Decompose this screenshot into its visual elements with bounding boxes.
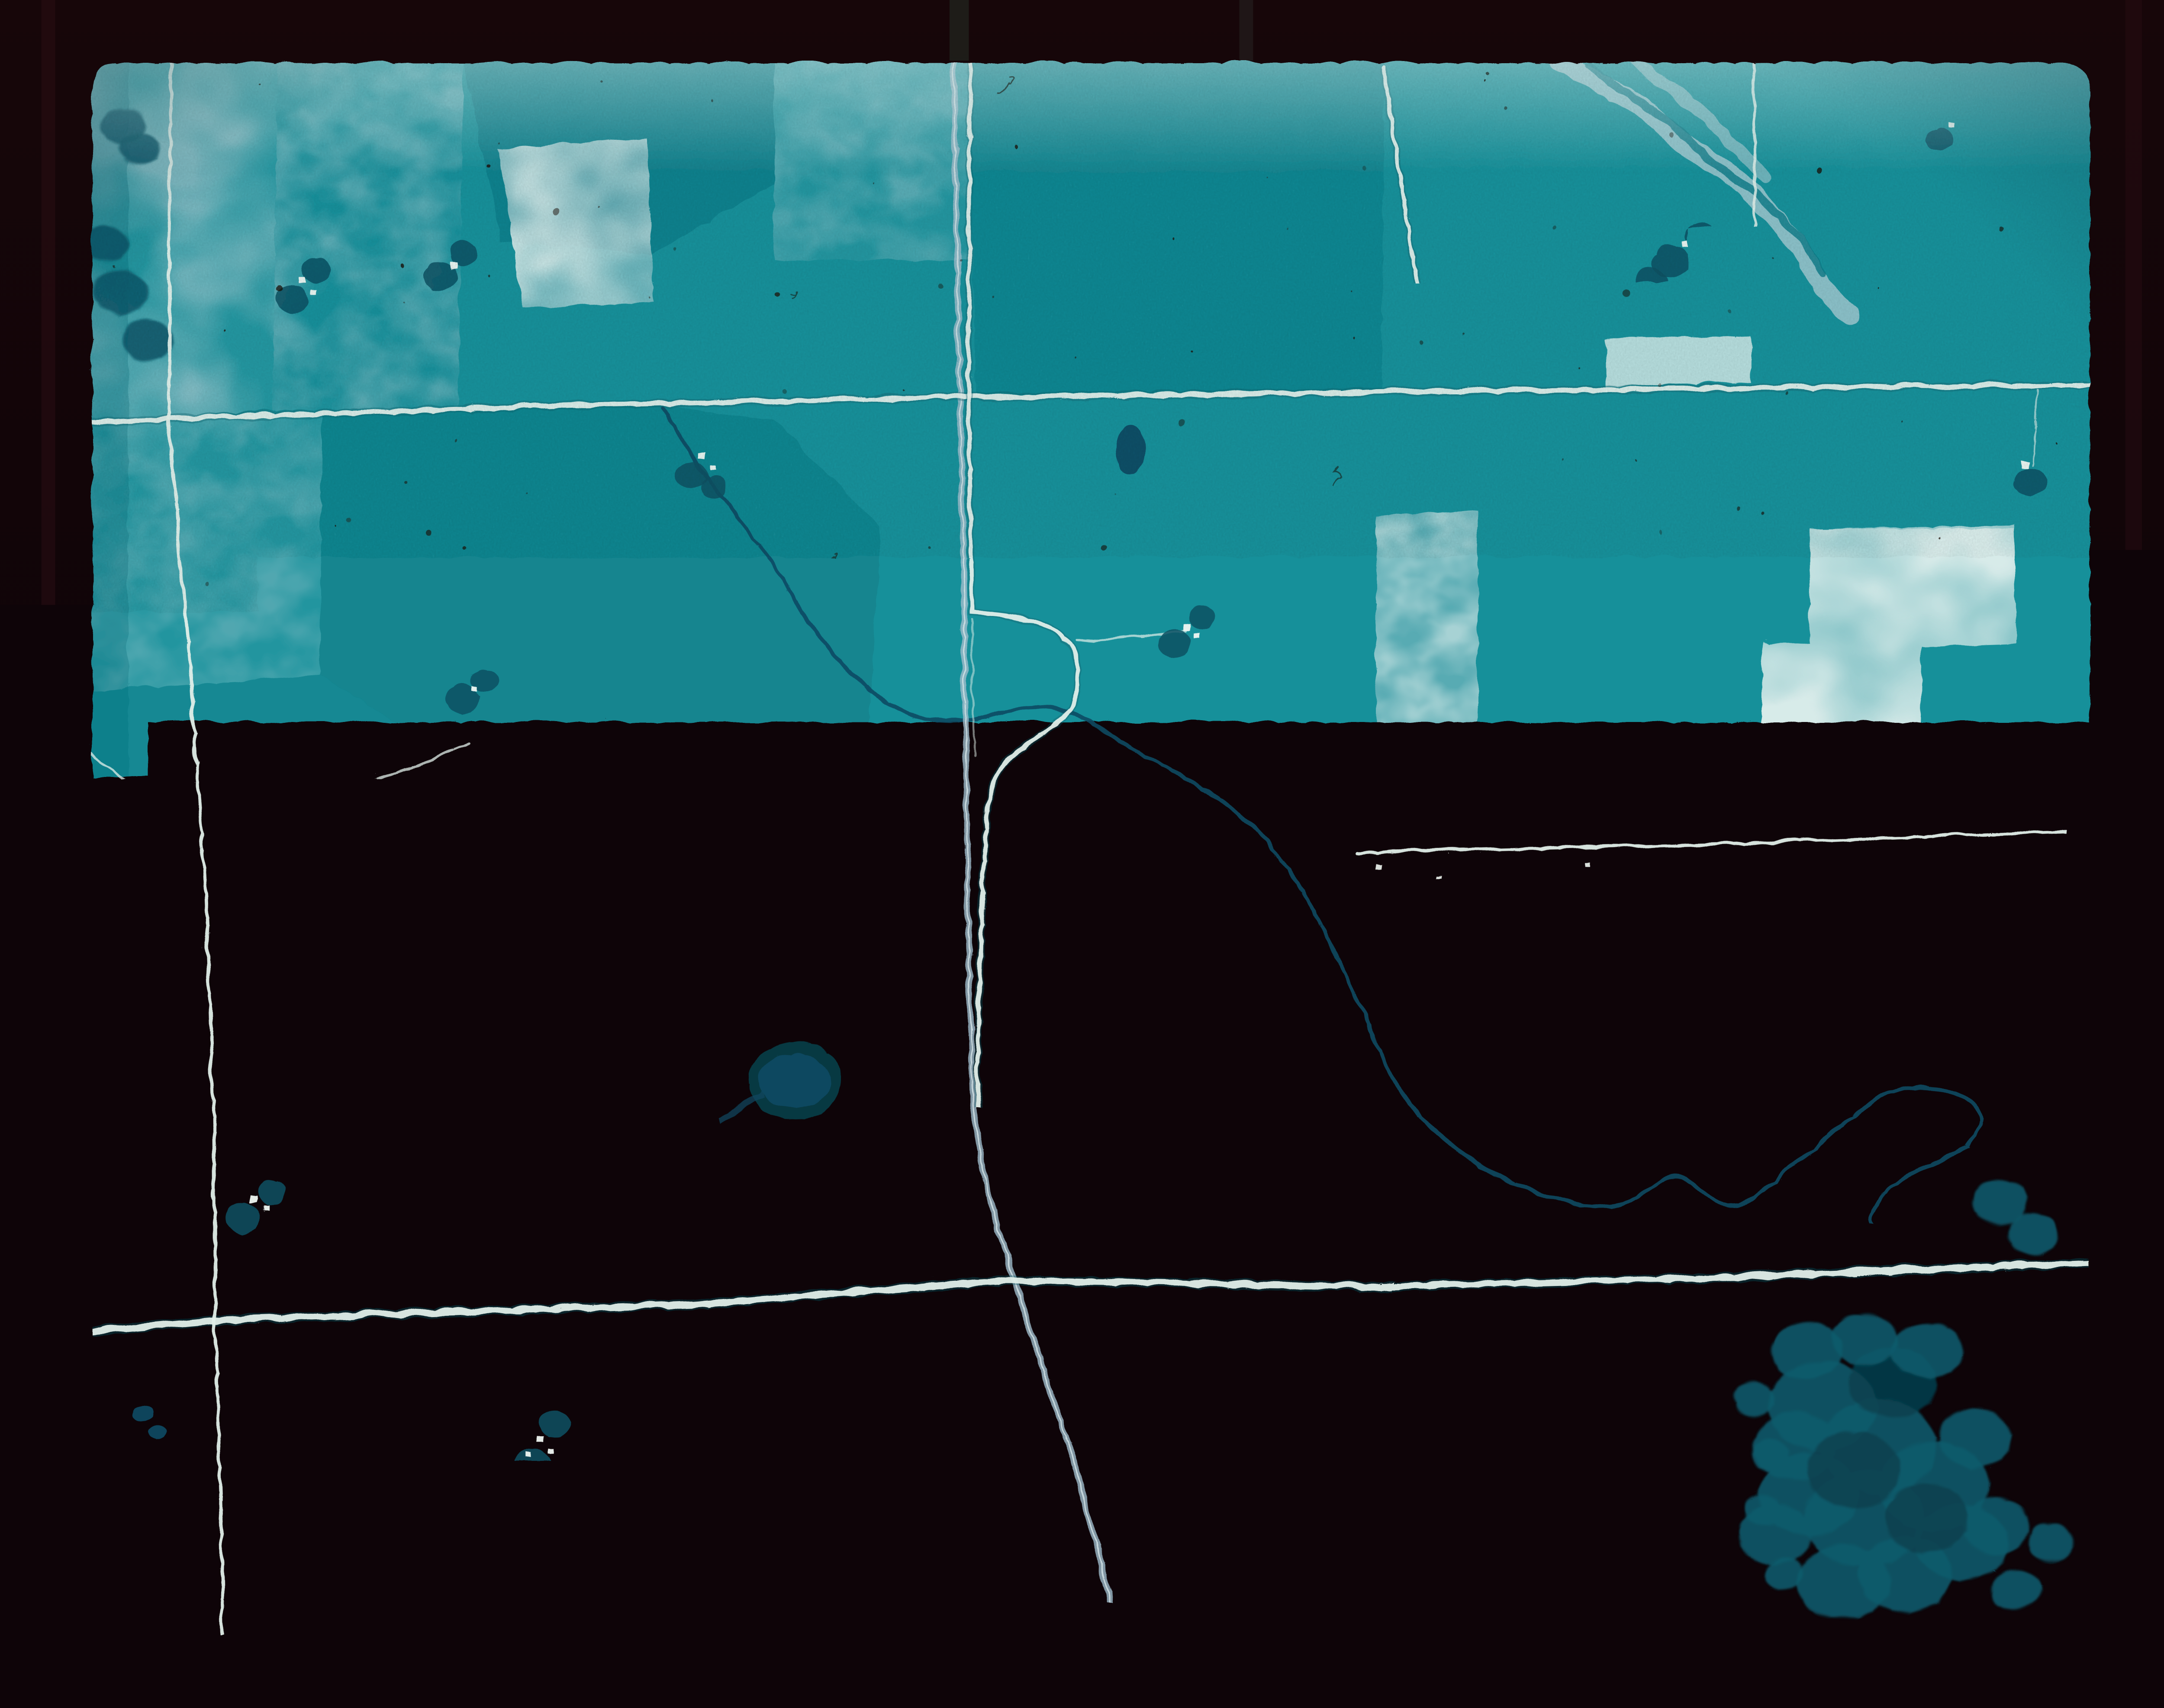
dust-speck <box>927 545 930 548</box>
dust-speck <box>789 924 793 928</box>
dust-speck <box>765 557 767 559</box>
dust-speck <box>1484 72 1487 76</box>
edge-tuft <box>1583 1622 1584 1633</box>
dust-speck <box>276 1125 280 1131</box>
dust-speck <box>1760 509 1763 512</box>
dust-speck <box>2010 919 2012 921</box>
dust-speck <box>1130 944 1134 948</box>
dust-speck <box>1926 1323 1930 1327</box>
dust-speck <box>2054 440 2056 442</box>
dust-speck <box>1355 1140 1357 1142</box>
dust-speck <box>183 1440 186 1443</box>
dust-speck <box>474 1469 477 1473</box>
dust-speck <box>2080 616 2082 618</box>
dust-speck <box>1482 79 1484 81</box>
dust-speck <box>1285 630 1288 633</box>
light-leak-streak <box>950 0 969 61</box>
dust-speck <box>409 1485 413 1489</box>
dust-speck <box>1502 105 1505 109</box>
dust-speck <box>525 491 526 493</box>
dust-speck <box>1224 848 1227 852</box>
dust-speck <box>1859 1505 1862 1509</box>
dust-speck <box>460 545 464 549</box>
dust-speck <box>159 1614 166 1622</box>
dust-speck <box>1527 1567 1530 1570</box>
dust-speck <box>2023 896 2028 902</box>
dust-speck <box>1472 731 1475 734</box>
dust-speck <box>1584 1027 1588 1031</box>
dust-speck <box>1501 606 1504 610</box>
dust-speck <box>560 664 565 669</box>
dust-speck <box>857 1616 860 1619</box>
dust-speck <box>332 861 333 863</box>
dust-speck <box>775 773 778 776</box>
dust-speck <box>405 479 408 483</box>
dust-speck <box>971 1279 976 1285</box>
dust-speck <box>773 290 778 296</box>
dust-speck <box>980 600 983 604</box>
dust-speck <box>1865 1019 1868 1023</box>
dust-speck <box>1636 458 1637 461</box>
dust-speck <box>1171 238 1173 240</box>
dust-speck <box>1816 1242 1819 1247</box>
dust-speck <box>347 1265 351 1270</box>
dust-speck <box>657 828 663 835</box>
dust-speck <box>1888 1169 1890 1171</box>
dust-speck <box>487 273 489 275</box>
dust-speck <box>310 1171 312 1173</box>
dust-speck <box>671 246 674 249</box>
dust-speck <box>1736 1594 1739 1596</box>
dust-speck <box>2064 768 2065 770</box>
dust-speck <box>248 1170 253 1176</box>
vignette <box>91 61 2088 1633</box>
dust-speck <box>1856 1196 1859 1199</box>
dust-speck <box>2067 712 2074 719</box>
dust-speck <box>1941 1549 1945 1553</box>
dust-speck <box>1768 1155 1772 1160</box>
dust-speck <box>1567 1489 1570 1493</box>
dust-speck <box>1612 620 1614 623</box>
edge-tuft <box>1233 1622 1233 1633</box>
dust-speck <box>1533 1331 1536 1335</box>
dust-speck <box>2037 1521 2043 1528</box>
dust-speck <box>992 294 994 296</box>
dust-speck <box>542 918 545 922</box>
dust-speck <box>1756 817 1760 822</box>
dust-speck <box>1099 543 1105 549</box>
dust-speck <box>1770 1050 1772 1053</box>
dust-speck <box>399 1338 405 1345</box>
dust-speck <box>1850 1558 1852 1560</box>
dust-speck <box>1839 902 1842 906</box>
dust-speck <box>1104 1192 1105 1193</box>
dust-speck <box>235 976 239 980</box>
dust-speck <box>124 1274 127 1277</box>
edge-tuft <box>1762 1618 1763 1633</box>
dust-speck <box>917 1476 918 1477</box>
dust-speck <box>1285 226 1287 228</box>
dust-speck <box>1793 1144 1795 1147</box>
dust-speck <box>1351 335 1353 337</box>
dust-speck <box>1785 390 1787 393</box>
dust-speck <box>222 328 224 331</box>
dust-speck <box>147 764 149 766</box>
dust-speck <box>1268 175 1269 177</box>
dust-speck <box>1110 1502 1112 1505</box>
dust-speck <box>2072 640 2074 643</box>
edge-tuft <box>1726 1620 1727 1633</box>
dust-speck <box>656 940 660 944</box>
dust-speck <box>877 1408 879 1410</box>
dust-speck <box>1093 736 1100 744</box>
dust-speck <box>1588 1585 1590 1588</box>
dust-speck <box>1188 728 1191 732</box>
dust-speck <box>592 1233 593 1234</box>
dust-speck <box>337 1479 339 1481</box>
dust-speck <box>325 567 326 569</box>
dust-speck <box>1560 458 1562 461</box>
dust-speck <box>146 1134 148 1137</box>
dust-speck <box>453 438 455 441</box>
dust-speck <box>851 979 856 984</box>
dust-speck <box>647 296 649 298</box>
dust-speck <box>569 846 571 848</box>
dust-speck <box>538 1290 544 1297</box>
dust-speck <box>1692 1567 1693 1569</box>
slide-scan-stage <box>0 0 2164 1708</box>
dust-speck <box>900 387 902 389</box>
dust-speck <box>761 1275 766 1281</box>
light-leak-streak <box>1441 1633 1457 1708</box>
dust-speck <box>1014 142 1018 146</box>
dust-speck <box>1735 504 1738 508</box>
dust-speck <box>779 858 781 860</box>
dust-speck <box>2042 761 2044 762</box>
dust-speck <box>991 1248 992 1250</box>
dust-speck <box>1668 130 1673 136</box>
edge-tuft <box>1542 1624 1542 1633</box>
dust-speck <box>235 936 238 939</box>
dust-speck <box>274 282 280 290</box>
dust-speck <box>999 870 1005 877</box>
dust-speck <box>1172 843 1174 845</box>
dust-speck <box>564 1426 568 1430</box>
dust-speck <box>1842 756 1845 758</box>
dust-speck <box>988 679 991 682</box>
dust-speck <box>399 262 403 266</box>
dust-speck <box>1658 529 1662 533</box>
dust-speck <box>498 140 499 142</box>
dust-speck <box>680 1041 683 1044</box>
dust-speck <box>1704 767 1709 773</box>
dust-speck <box>936 281 941 287</box>
dust-speck <box>556 1566 558 1568</box>
dust-speck <box>730 777 733 781</box>
aerial-photo-slide <box>0 0 2164 1708</box>
dust-speck <box>1361 579 1364 582</box>
dust-speck <box>1282 1525 1283 1527</box>
edge-tuft <box>1483 1624 1485 1633</box>
dust-speck <box>1529 856 1531 858</box>
dust-speck <box>343 1167 349 1174</box>
dust-speck <box>1009 1263 1011 1264</box>
dust-speck <box>410 876 412 878</box>
dust-speck <box>1937 536 1939 538</box>
dust-speck <box>177 1148 179 1150</box>
dust-speck <box>1865 1255 1869 1259</box>
dust-speck <box>226 1283 228 1285</box>
dust-speck <box>1350 290 1352 291</box>
dust-speck <box>551 206 557 213</box>
dust-speck <box>872 180 873 182</box>
dust-speck <box>1832 1305 1834 1307</box>
dust-speck <box>346 517 351 522</box>
dust-speck <box>1498 690 1500 692</box>
dust-speck <box>258 81 260 83</box>
dust-speck <box>1483 832 1485 834</box>
dust-speck <box>1547 1228 1550 1232</box>
dust-speck <box>1552 222 1556 227</box>
dust-speck <box>1577 937 1580 941</box>
dust-speck <box>1847 1340 1852 1345</box>
dust-speck <box>1362 165 1366 169</box>
light-leak-streak <box>1240 0 1253 61</box>
dust-speck <box>1683 810 1687 815</box>
dust-speck <box>610 1408 612 1410</box>
dust-speck <box>1610 1160 1612 1163</box>
dust-speck <box>1588 906 1591 909</box>
dust-speck <box>1186 1023 1192 1031</box>
dust-speck <box>1901 420 1903 422</box>
photo-emulsion <box>83 58 2098 1633</box>
dust-speck <box>1112 492 1114 493</box>
dust-speck <box>1473 1506 1476 1509</box>
dust-speck <box>1468 633 1471 636</box>
dust-speck <box>1231 1510 1233 1512</box>
dust-speck <box>334 523 335 525</box>
dust-speck <box>1576 366 1578 368</box>
dust-speck <box>546 667 551 674</box>
dust-speck <box>403 300 404 301</box>
film-effects <box>91 61 2088 1633</box>
dust-speck <box>987 991 990 994</box>
dust-speck <box>1330 1531 1332 1533</box>
dust-speck <box>1172 1442 1175 1447</box>
dust-speck <box>1320 577 1322 580</box>
dust-speck <box>1418 339 1422 343</box>
dust-speck <box>110 1073 112 1076</box>
dust-speck <box>1622 287 1629 295</box>
light-leak-streak <box>767 1633 784 1708</box>
dust-speck <box>1995 925 1997 928</box>
dust-speck <box>1328 1574 1330 1576</box>
dust-speck <box>1189 348 1191 350</box>
dust-speck <box>425 528 430 534</box>
dust-speck <box>660 1006 662 1008</box>
dust-speck <box>1593 1134 1596 1137</box>
dust-speck <box>942 1232 944 1234</box>
dust-speck <box>708 1225 710 1226</box>
dust-speck <box>213 707 215 709</box>
edge-tuft <box>1098 1624 1099 1633</box>
dust-speck <box>709 947 711 948</box>
dust-speck <box>1291 603 1295 606</box>
dust-speck <box>1935 1049 1936 1051</box>
dust-speck <box>927 1527 929 1530</box>
dust-speck <box>782 387 786 392</box>
dust-speck <box>319 1091 321 1093</box>
dust-speck <box>797 964 798 966</box>
dust-speck <box>1190 719 1193 722</box>
dust-speck <box>103 1221 106 1224</box>
dust-speck <box>1383 638 1385 641</box>
edge-tuft <box>707 1618 708 1633</box>
dust-speck <box>724 893 726 896</box>
dust-speck <box>1670 661 1672 663</box>
dust-speck <box>1488 929 1490 931</box>
dust-speck <box>1048 1405 1053 1411</box>
dust-speck <box>1999 225 2003 229</box>
dust-speck <box>1875 286 1877 288</box>
dust-speck <box>597 203 599 206</box>
dust-speck <box>1232 857 1237 862</box>
dust-speck <box>1440 567 1442 569</box>
dust-speck <box>720 1453 724 1457</box>
dust-speck <box>1848 931 1852 936</box>
dust-speck <box>482 707 484 709</box>
dust-speck <box>1770 255 1771 256</box>
dust-speck <box>991 1625 993 1628</box>
dust-speck <box>100 1622 103 1626</box>
dust-speck <box>485 161 488 165</box>
dust-speck <box>664 591 667 594</box>
dust-speck <box>1727 307 1731 312</box>
dust-speck <box>540 1053 542 1056</box>
dust-speck <box>2046 1251 2048 1254</box>
dust-speck <box>1070 629 1077 636</box>
dust-speck <box>138 902 144 909</box>
light-leak-streak <box>2125 0 2142 1708</box>
dust-speck <box>1859 1391 1861 1394</box>
dust-speck <box>1460 330 1462 333</box>
dust-speck <box>1988 770 1990 772</box>
dust-speck <box>706 1468 710 1472</box>
edge-tuft <box>1912 1624 1913 1633</box>
dust-speck <box>1881 558 1886 563</box>
dust-speck <box>112 264 114 267</box>
dust-speck <box>816 1289 818 1290</box>
dust-speck <box>1481 873 1484 875</box>
dust-speck <box>1891 1218 1896 1223</box>
dust-speck <box>875 915 878 918</box>
dust-speck <box>1074 354 1076 357</box>
dust-speck <box>646 1022 647 1024</box>
dust-speck <box>191 932 196 938</box>
dust-speck <box>1257 1476 1260 1479</box>
dust-speck <box>958 258 960 261</box>
dust-speck <box>1938 1279 1940 1283</box>
dust-speck <box>709 97 711 100</box>
dust-speck <box>359 902 364 908</box>
dust-speck <box>1330 1292 1332 1293</box>
dust-speck <box>1676 1441 1678 1444</box>
dust-speck <box>451 1406 453 1409</box>
dust-speck <box>1053 919 1055 922</box>
dust-speck <box>1432 1016 1434 1018</box>
dust-speck <box>1092 1550 1098 1557</box>
dust-speck <box>511 1308 513 1311</box>
dust-speck <box>160 1568 166 1575</box>
dust-speck <box>1656 381 1660 385</box>
dust-speck <box>698 1072 701 1076</box>
dust-speck <box>2019 739 2021 741</box>
dust-speck <box>1178 418 1184 425</box>
dust-speck <box>204 580 207 583</box>
light-leak-streak <box>42 0 55 1708</box>
dust-speck <box>1816 167 1822 174</box>
dust-speck <box>1230 1475 1233 1478</box>
dust-speck <box>600 77 602 80</box>
dust-speck <box>862 862 864 864</box>
dust-speck <box>1389 1339 1392 1342</box>
dust-speck <box>330 844 335 850</box>
dust-speck <box>1790 844 1794 850</box>
